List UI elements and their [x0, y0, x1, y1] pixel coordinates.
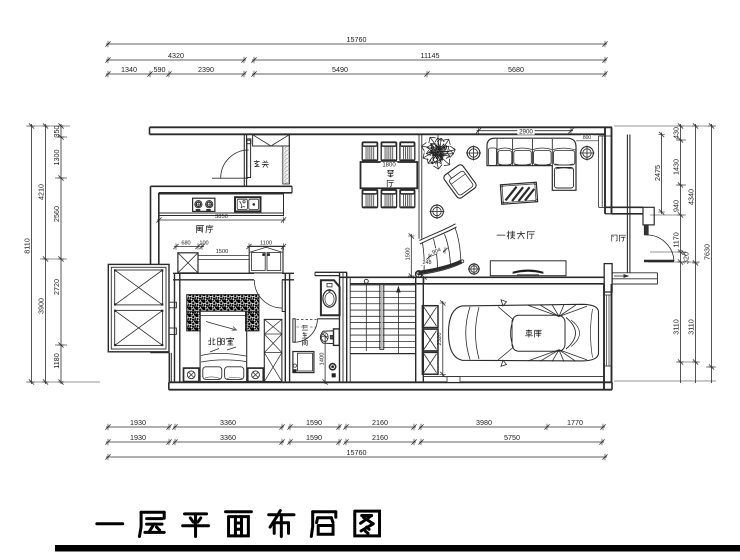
- svg-text:940: 940: [672, 200, 681, 212]
- svg-text:1500: 1500: [406, 248, 412, 261]
- svg-text:15760: 15760: [347, 448, 367, 457]
- svg-text:1930: 1930: [130, 433, 146, 442]
- svg-text:590: 590: [154, 65, 166, 74]
- svg-text:5680: 5680: [508, 65, 524, 74]
- svg-text:2390: 2390: [198, 65, 214, 74]
- svg-text:1400: 1400: [319, 353, 325, 366]
- svg-text:5490: 5490: [332, 65, 348, 74]
- svg-text:1770: 1770: [567, 418, 583, 427]
- svg-text:4210: 4210: [37, 184, 46, 200]
- svg-text:800: 800: [583, 135, 592, 141]
- svg-text:2160: 2160: [372, 418, 388, 427]
- svg-text:1300: 1300: [52, 150, 61, 166]
- svg-text:2560: 2560: [52, 206, 61, 222]
- svg-text:2160: 2160: [372, 433, 388, 442]
- svg-text:1170: 1170: [672, 232, 681, 247]
- svg-text:1500: 1500: [216, 249, 228, 255]
- svg-text:1590: 1590: [306, 418, 322, 427]
- svg-text:680: 680: [181, 241, 190, 247]
- svg-text:3360: 3360: [220, 418, 236, 427]
- svg-text:1800: 1800: [382, 163, 396, 169]
- svg-text:1340: 1340: [121, 65, 137, 74]
- svg-text:2900: 2900: [519, 128, 533, 135]
- svg-text:1180: 1180: [52, 353, 61, 368]
- svg-text:8110: 8110: [23, 238, 32, 253]
- svg-text:4320: 4320: [168, 51, 184, 60]
- svg-text:3110: 3110: [687, 319, 696, 334]
- svg-text:11145: 11145: [421, 51, 440, 60]
- svg-text:350: 350: [52, 126, 61, 138]
- svg-text:248: 248: [423, 260, 432, 266]
- svg-text:4340: 4340: [687, 189, 696, 205]
- svg-text:1930: 1930: [130, 418, 146, 427]
- svg-text:2475: 2475: [653, 165, 662, 181]
- svg-text:1590: 1590: [306, 433, 322, 442]
- svg-text:5750: 5750: [504, 433, 520, 442]
- svg-text:430: 430: [672, 127, 681, 139]
- svg-text:1430: 1430: [672, 159, 681, 175]
- svg-text:3360: 3360: [220, 433, 236, 442]
- svg-text:2320: 2320: [437, 333, 443, 346]
- svg-text:7630: 7630: [703, 244, 712, 260]
- svg-text:15760: 15760: [347, 35, 367, 44]
- svg-text:2720: 2720: [52, 279, 61, 295]
- svg-text:3980: 3980: [476, 418, 492, 427]
- svg-text:100: 100: [199, 241, 208, 247]
- svg-text:3850: 3850: [215, 214, 228, 220]
- svg-text:3900: 3900: [37, 298, 46, 314]
- svg-text:3110: 3110: [672, 319, 681, 334]
